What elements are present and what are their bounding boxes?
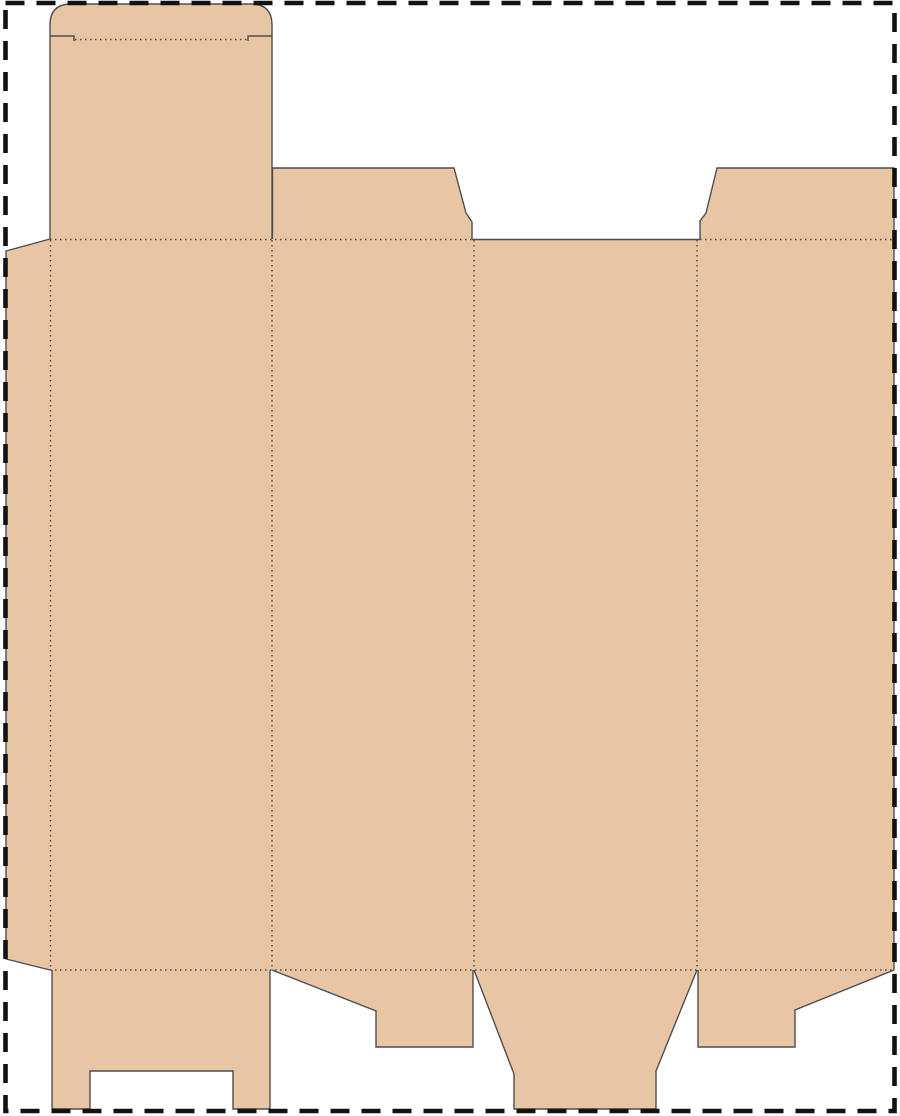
dieline-drawing bbox=[0, 0, 900, 1116]
panel-1 bbox=[50, 239, 272, 970]
artboard-page bbox=[0, 0, 900, 1116]
top-dust-flap-left bbox=[273, 168, 473, 239]
top-dust-flap-right bbox=[700, 168, 894, 239]
panel-2 bbox=[272, 239, 474, 970]
panel-4 bbox=[697, 239, 894, 970]
glue-flap bbox=[6, 239, 50, 970]
panel-3 bbox=[474, 239, 697, 970]
board-fills bbox=[6, 4, 894, 1109]
